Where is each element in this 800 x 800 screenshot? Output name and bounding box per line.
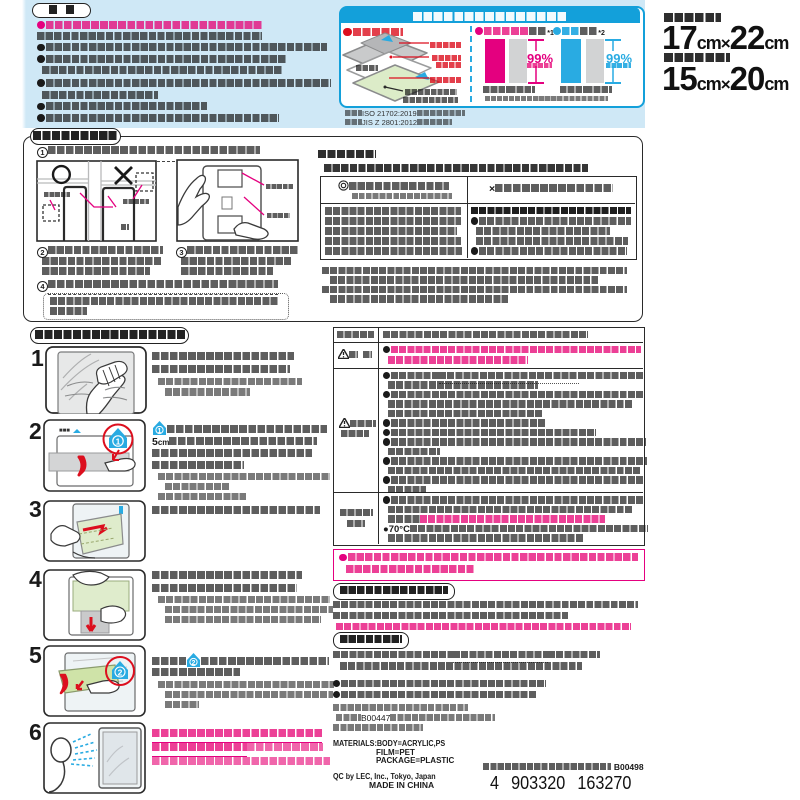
- svg-text:1: 1: [158, 428, 162, 435]
- svg-text:2: 2: [118, 668, 123, 678]
- svg-text:■■■: ■■■: [59, 428, 70, 434]
- svg-text:2: 2: [192, 660, 196, 667]
- svg-text:1: 1: [116, 437, 121, 447]
